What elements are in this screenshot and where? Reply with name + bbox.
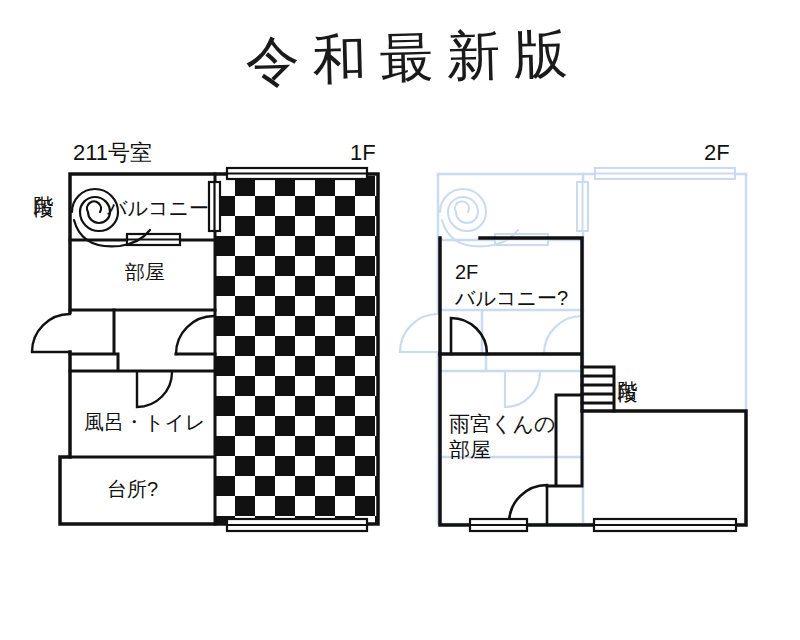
doors-1f: [32, 314, 214, 407]
room-label-1f: 部屋: [125, 261, 165, 283]
balcony-label-2f-line2: バルコニー?: [455, 287, 568, 309]
floor-label-1f: 1F: [350, 141, 376, 165]
floorplan-page: 令和最新版: [0, 0, 800, 640]
ghost-windows: [495, 168, 735, 245]
room-number-1f: 211号室: [73, 141, 152, 165]
kitchen-label-1f: 台所?: [107, 478, 158, 500]
entry-door-1f: [32, 314, 70, 352]
amamiya-room-label-line1: 雨宮くんの: [449, 412, 555, 435]
floor2-plan: [440, 238, 746, 531]
balcony-label-2f-line1: 2F: [455, 261, 478, 283]
ghost-outer-walls: [438, 174, 746, 524]
outer-walls-2f: [440, 238, 746, 525]
floor-label-2f: 2F: [704, 141, 730, 165]
hall-door-1f: [176, 316, 214, 354]
stairs-label-2f: 階段: [617, 365, 639, 369]
bath-door-1f: [137, 372, 172, 407]
room-door-2f: [509, 485, 547, 523]
bath-toilet-label-1f: 風呂・トイレ: [84, 411, 205, 433]
floor1-plan: [32, 168, 378, 531]
floorplan-drawing: [0, 0, 800, 640]
checkerboard-area: [215, 176, 378, 524]
windows-2f: [470, 519, 736, 531]
stairs-label-1f: 階段: [33, 180, 55, 184]
balcony-label-1f: バルコニー: [107, 197, 209, 219]
hall-walls-1f: [70, 310, 215, 371]
ghost-doors: [400, 314, 582, 407]
corridor-walls-2f: [547, 395, 582, 486]
stairs-symbol-2f: [582, 367, 614, 411]
amamiya-room-label-line2: 部屋: [449, 438, 491, 461]
